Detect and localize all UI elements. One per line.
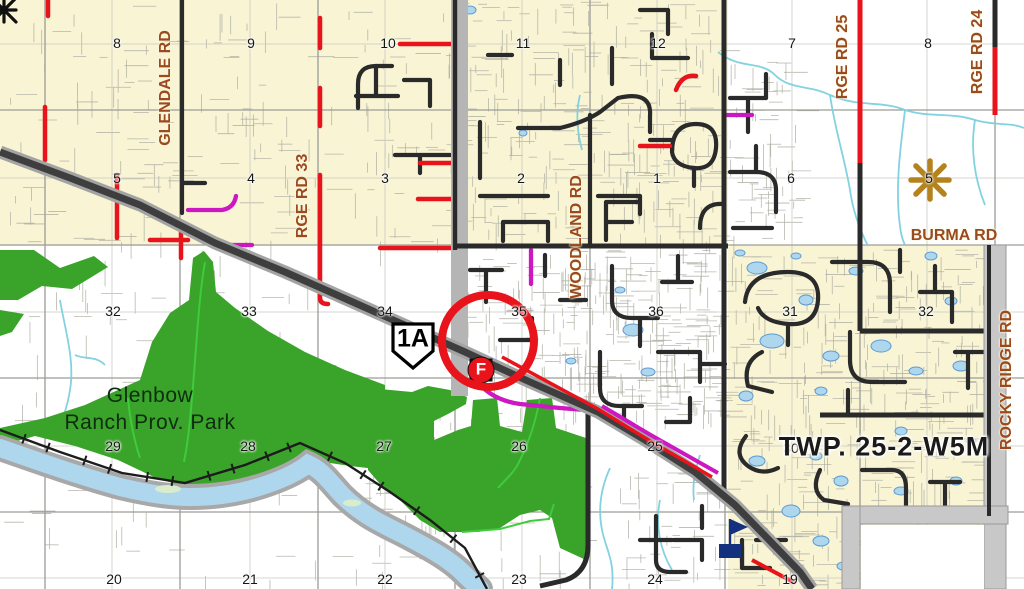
section-number: 8	[924, 35, 932, 51]
section-number: 21	[242, 571, 258, 587]
section-number: 23	[511, 571, 527, 587]
section-number: 11	[516, 35, 531, 51]
highway-1a-shield: 1A	[391, 322, 435, 370]
section-number: 28	[240, 438, 256, 454]
section-number: 4	[247, 170, 255, 186]
section-number: 31	[782, 303, 798, 319]
section-number: 30	[783, 440, 799, 456]
section-number: 22	[377, 571, 393, 587]
map-canvas	[0, 0, 1024, 589]
section-number: 5	[925, 170, 933, 186]
section-number: 10	[380, 35, 396, 51]
fire-station-letter: F	[476, 360, 486, 380]
county-map[interactable]: GLENDALE RDRGE RD 33WOODLAND RDRGE RD 25…	[0, 0, 1024, 589]
section-number: 3	[381, 170, 389, 186]
flag-base-icon	[719, 544, 741, 558]
section-number: 26	[511, 438, 527, 454]
section-number: 29	[105, 438, 121, 454]
section-number: 8	[113, 35, 121, 51]
shield-text: 1A	[397, 325, 429, 354]
section-number: 5	[113, 170, 121, 186]
section-number: 9	[247, 35, 255, 51]
section-number: 25	[647, 438, 663, 454]
section-number: 1	[653, 170, 661, 186]
section-number: 24	[647, 571, 663, 587]
section-number: 2	[517, 170, 525, 186]
section-number: 33	[241, 303, 257, 319]
section-number: 27	[376, 438, 392, 454]
section-number: 34	[377, 303, 393, 319]
section-number: 20	[106, 571, 122, 587]
section-number: 19	[782, 571, 798, 587]
section-number: 35	[511, 303, 527, 319]
section-number: 12	[650, 35, 666, 51]
section-number: 32	[105, 303, 121, 319]
section-number: 6	[787, 170, 795, 186]
section-number: 7	[788, 35, 796, 51]
section-number: 32	[918, 303, 934, 319]
section-number: 36	[648, 303, 664, 319]
